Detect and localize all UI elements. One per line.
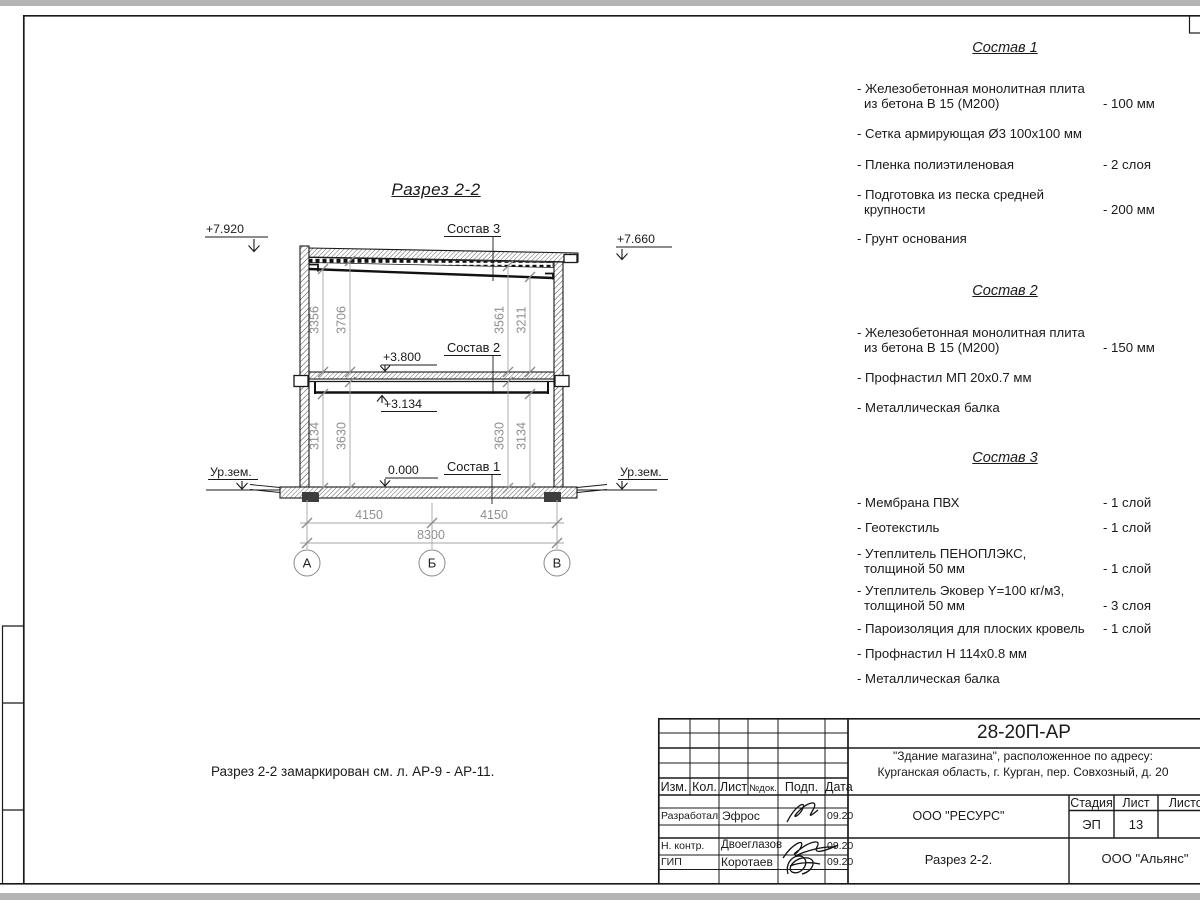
item-value: - 2 слоя (1103, 157, 1151, 172)
item-text: - Пленка полиэтиленовая (857, 157, 1014, 172)
item-value: - 150 мм (1103, 340, 1155, 355)
list-item: - Подготовка из песка средней крупности … (857, 187, 1162, 217)
project-description: "Здание магазина", расположенное по адре… (848, 749, 1198, 780)
dim-4150-right: 4150 (480, 508, 508, 522)
list-item: - Мембрана ПВХ - 1 слой (857, 495, 1162, 510)
dim-3211: 3211 (515, 307, 529, 334)
dim-8300: 8300 (417, 528, 445, 542)
staff-name: Двоеглазов (721, 839, 782, 851)
item-text: толщиной 50 мм (857, 561, 965, 576)
sheets-label: Листов (1158, 796, 1200, 810)
item-text: - Подготовка из песка средней (857, 187, 1044, 202)
stage-label: Стадия (1069, 796, 1114, 810)
composition-panel: Состав 1 - Железобетонная монолитная пли… (855, 0, 1167, 760)
dim-4150-left: 4150 (355, 508, 383, 522)
floor-anchor-left (294, 376, 308, 387)
elev-roof-right: +7.660 (617, 232, 655, 246)
list-item: - Утеплитель Эковер Y=100 кг/м3, толщино… (857, 583, 1162, 613)
staff-date: 09.20 (827, 840, 853, 852)
dim-3706: 3706 (335, 306, 349, 334)
elev-roof-left: +7.920 (206, 222, 244, 236)
sostav3-title: Состав 3 (855, 450, 1155, 466)
elev-beam: +3.134 (384, 397, 422, 411)
elev-zero: 0.000 (388, 463, 419, 477)
item-value: - 1 слой (1103, 621, 1151, 636)
item-text: - Металлическая балка (857, 671, 1000, 686)
sostav1-title: Состав 1 (855, 40, 1155, 56)
item-text: из бетона В 15 (М200) (857, 340, 999, 355)
screenshot-root: { "colors": { "background": "#b4b4b4", "… (0, 0, 1200, 900)
dim-3134-r: 3134 (515, 422, 529, 450)
item-text: - Пароизоляция для плоских кровель (857, 621, 1085, 636)
document-code: 28-20П-АР (848, 722, 1200, 744)
dim-3134-l: 3134 (308, 422, 322, 450)
col-izm: Изм. (658, 780, 690, 794)
col-list: Лист (719, 780, 748, 794)
ground-wing-right (577, 485, 607, 493)
list-item: - Профнастил МП 20х0.7 мм (857, 370, 1162, 385)
sheet-label: Лист (1114, 796, 1158, 810)
item-value: - 200 мм (1103, 202, 1155, 217)
signature-1 (787, 803, 818, 822)
item-text: крупности (857, 202, 925, 217)
item-text: толщиной 50 мм (857, 598, 965, 613)
list-item: - Пароизоляция для плоских кровель - 1 с… (857, 621, 1162, 636)
item-value: - 1 слой (1103, 495, 1151, 510)
sheet-title: Разрез 2-2. (848, 852, 1069, 867)
list-item: - Железобетонная монолитная плита из бет… (857, 325, 1162, 355)
footing-right (544, 492, 561, 502)
item-text: - Профнастил МП 20х0.7 мм (857, 370, 1032, 385)
col-podp: Подп. (778, 780, 825, 794)
stage-value: ЭП (1069, 817, 1114, 832)
building-section (206, 246, 657, 502)
item-text: - Грунт основания (857, 231, 967, 246)
dim-3356: 3356 (308, 306, 322, 334)
item-text: - Сетка армирующая Ø3 100х100 мм (857, 126, 1082, 141)
list-item: - Сетка армирующая Ø3 100х100 мм (857, 126, 1162, 141)
item-text: - Утеплитель Эковер Y=100 кг/м3, (857, 583, 1064, 598)
sostav2-title: Состав 2 (855, 283, 1155, 299)
axis-b: Б (428, 556, 437, 571)
list-item: - Железобетонная монолитная плита из бет… (857, 81, 1162, 111)
item-text: из бетона В 15 (М200) (857, 96, 999, 111)
item-text: - Мембрана ПВХ (857, 495, 959, 510)
horizontal-dimension-labels: 4150 4150 8300 (355, 508, 508, 542)
list-item: - Утеплитель ПЕНОПЛЭКС, толщиной 50 мм -… (857, 546, 1162, 576)
item-text: - Металлическая балка (857, 400, 1000, 415)
list-item: - Металлическая балка (857, 671, 1162, 686)
list-item: - Пленка полиэтиленовая - 2 слоя (857, 157, 1162, 172)
contractor-org: ООО "РЕСУРС" (848, 809, 1069, 823)
dim-3630-r: 3630 (493, 422, 507, 450)
leader-sostav3: Состав 3 (447, 221, 500, 236)
list-item: - Металлическая балка (857, 400, 1162, 415)
left-wall (300, 246, 309, 492)
ground-slab (280, 487, 577, 498)
axis-a: А (303, 556, 312, 571)
staff-name: Эфрос (722, 809, 760, 823)
floor-anchor-right (555, 376, 569, 387)
footing-left (302, 492, 319, 502)
axis-bubbles: А Б В (294, 550, 570, 576)
drawing-title: Разрез 2-2 (355, 180, 517, 200)
ground-wing-left (250, 485, 280, 493)
roof-edge-cap (564, 255, 577, 263)
signature-3 (787, 856, 820, 874)
staff-name: Коротаев (721, 855, 773, 869)
dim-3561: 3561 (493, 306, 507, 334)
reference-note: Разрез 2-2 замаркирован см. л. АР-9 - АР… (211, 764, 494, 779)
item-text: - Утеплитель ПЕНОПЛЭКС, (857, 546, 1026, 561)
item-value: - 1 слой (1103, 520, 1151, 535)
elev-ground-right: Ур.зем. (620, 465, 662, 479)
project-line1: "Здание магазина", расположенное по адре… (893, 749, 1153, 763)
staff-role: ГИП (661, 856, 682, 868)
list-item: - Грунт основания (857, 231, 1162, 246)
item-text: - Железобетонная монолитная плита (857, 325, 1085, 340)
col-kol: Кол. (690, 780, 719, 794)
list-item: - Профнастил Н 114х0.8 мм (857, 646, 1162, 661)
staff-role: Н. контр. (661, 840, 704, 852)
item-value: - 3 слоя (1103, 598, 1151, 613)
staff-role: Разработал (661, 810, 718, 822)
leader-sostav2: Состав 2 (447, 340, 500, 355)
col-ndok: №док. (748, 783, 778, 794)
item-text: - Железобетонная монолитная плита (857, 81, 1085, 96)
sheet-number: 13 (1114, 817, 1158, 832)
dim-3630-l: 3630 (335, 422, 349, 450)
design-company: ООО "Альянс" (1069, 851, 1200, 866)
elev-ground-left: Ур.зем. (210, 465, 252, 479)
elev-floor: +3.800 (383, 350, 421, 364)
roof-beam (309, 269, 553, 278)
axis-c: В (553, 556, 562, 571)
leader-sostav1: Состав 1 (447, 459, 500, 474)
project-line2: Курганская область, г. Курган, пер. Совх… (877, 765, 1168, 779)
item-value: - 1 слой (1103, 561, 1151, 576)
col-data: Дата (825, 780, 848, 794)
item-text: - Геотекстиль (857, 520, 939, 535)
item-value: - 100 мм (1103, 96, 1155, 111)
list-item: - Геотекстиль - 1 слой (857, 520, 1162, 535)
item-text: - Профнастил Н 114х0.8 мм (857, 646, 1027, 661)
